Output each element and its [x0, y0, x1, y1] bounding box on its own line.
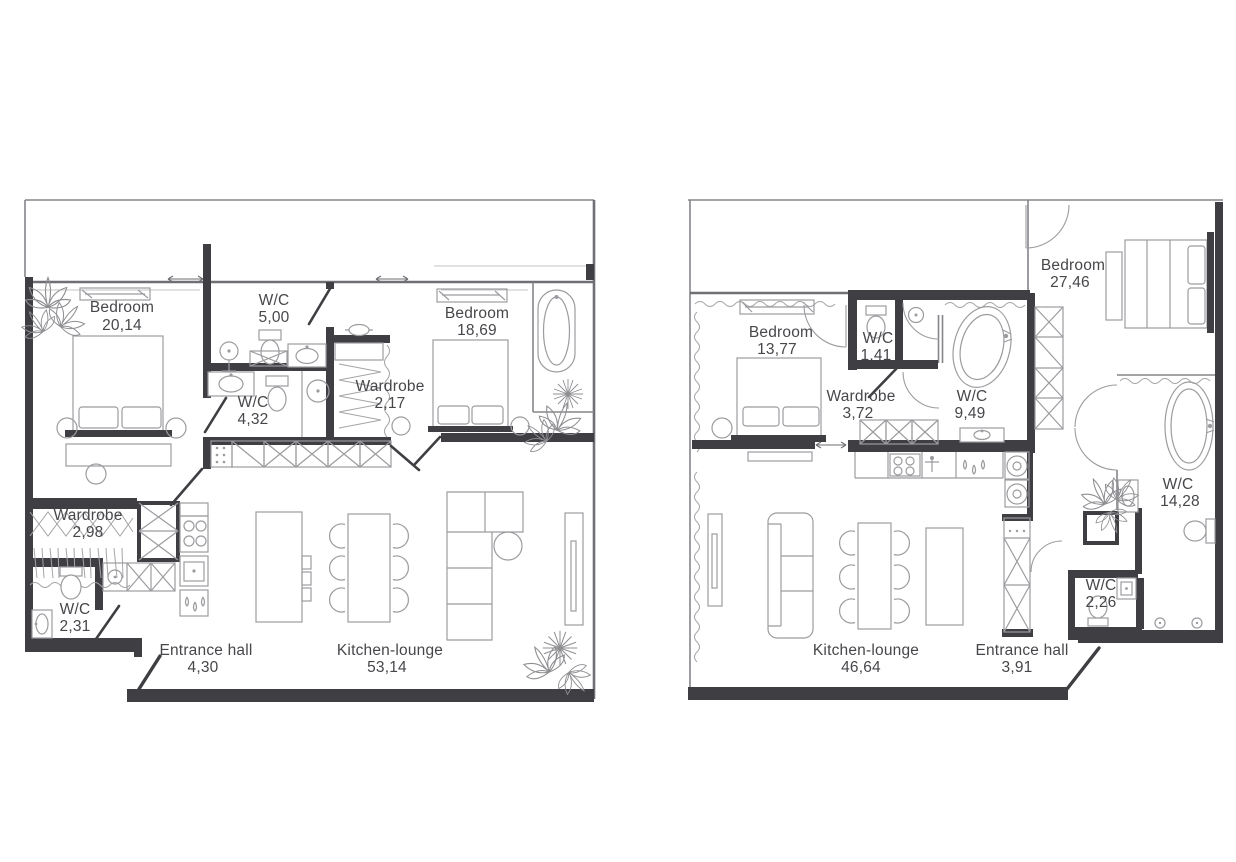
floorplan-right: Bedroom 13,77 W/C 1,41 Wardrobe 3,72 W/C… — [688, 200, 1223, 700]
room-label-wc-141: W/C 1,41 — [861, 330, 894, 364]
kitchen-island — [256, 512, 311, 622]
bathtub-icon — [538, 290, 575, 372]
room-area: 2,98 — [73, 524, 104, 541]
room-area: 3,72 — [843, 405, 874, 422]
sofa-icon-2 — [768, 513, 813, 638]
room-area: 1,41 — [861, 347, 892, 364]
floorplan-left: Bedroom 20,14 W/C 5,00 W/C 4,32 Wardrobe… — [15, 200, 598, 702]
room-name: Wardrobe — [826, 388, 895, 405]
room-name: W/C — [259, 292, 290, 309]
room-area: 18,69 — [457, 322, 497, 339]
room-label-wc-231: W/C 2,31 — [60, 601, 91, 635]
room-area: 27,46 — [1050, 274, 1090, 291]
balcony-line — [25, 200, 594, 277]
lobby-sink — [909, 308, 924, 323]
room-label-bedroom-1869: Bedroom 18,69 — [445, 305, 509, 339]
hall-closet — [1004, 518, 1030, 632]
room-area: 2,26 — [1086, 594, 1117, 611]
bed-icon-4 — [1106, 232, 1214, 333]
room-area: 3,91 — [1002, 659, 1033, 676]
kitchen-island-2 — [926, 528, 963, 625]
room-area: 4,30 — [188, 659, 219, 676]
tv-console — [565, 513, 583, 625]
tv-console-2 — [708, 514, 722, 606]
dining-table — [330, 514, 409, 622]
room-area: 2,31 — [60, 618, 91, 635]
room-area: 53,14 — [367, 659, 407, 676]
room-name: W/C — [863, 330, 894, 347]
room-area: 13,77 — [757, 341, 797, 358]
room-name: W/C — [1086, 577, 1117, 594]
room-area: 46,64 — [841, 659, 881, 676]
room-name: W/C — [957, 388, 988, 405]
cabinet-column — [1035, 307, 1063, 429]
wc4-fixtures — [208, 371, 329, 437]
room-area: 14,28 — [1160, 493, 1200, 510]
dining-table-2 — [840, 523, 910, 629]
room-label-wc-500: W/C 5,00 — [259, 292, 290, 326]
room-name: W/C — [60, 601, 91, 618]
room-name: Wardrobe — [53, 507, 122, 524]
room-area: 2,17 — [375, 395, 406, 412]
room-name: Wardrobe — [355, 378, 424, 395]
floorplan-sheet: Bedroom 20,14 W/C 5,00 W/C 4,32 Wardrobe… — [0, 0, 1236, 862]
stove-column — [180, 503, 208, 616]
room-name: W/C — [1163, 476, 1194, 493]
room-area: 20,14 — [102, 317, 142, 334]
room-label-bedroom-2014: Bedroom 20,14 — [90, 299, 154, 334]
room-label-bedroom-2746: Bedroom 27,46 — [1041, 257, 1105, 291]
room-label-wc-432: W/C 4,32 — [238, 394, 269, 428]
room-label-wardrobe-372: Wardrobe 3,72 — [826, 388, 895, 422]
room-label-kitchen-4664: Kitchen-lounge 46,64 — [813, 642, 919, 676]
room-label-wardrobe-298: Wardrobe 2,98 — [53, 507, 122, 541]
room-name: Bedroom — [90, 299, 154, 316]
door-arrow — [816, 442, 846, 448]
room-name: Entrance hall — [975, 642, 1068, 659]
plant-icon-2 — [517, 379, 588, 455]
lower-counter — [103, 563, 175, 591]
room-label-wc-226: W/C 2,26 — [1086, 577, 1117, 611]
room-label-bedroom-1377: Bedroom 13,77 — [749, 324, 813, 358]
room-name: Bedroom — [445, 305, 509, 322]
room-name: Bedroom — [1041, 257, 1105, 274]
room-label-wc-949: W/C 9,49 — [955, 388, 988, 422]
sofa-icon — [447, 492, 523, 640]
room-area: 4,32 — [238, 411, 269, 428]
floorplan-canvas: Bedroom 20,14 W/C 5,00 W/C 4,32 Wardrobe… — [0, 0, 1236, 862]
room-name: Bedroom — [749, 324, 813, 341]
glazing-lines — [33, 266, 594, 290]
room-name: Kitchen-lounge — [813, 642, 919, 659]
room-label-entrance-430: Entrance hall 4,30 — [159, 642, 252, 676]
room-name: Entrance hall — [159, 642, 252, 659]
room-area: 9,49 — [955, 405, 986, 422]
room-area: 5,00 — [259, 309, 290, 326]
room-name: Kitchen-lounge — [337, 642, 443, 659]
room-label-kitchen-5314: Kitchen-lounge 53,14 — [337, 642, 443, 676]
room-name: W/C — [238, 394, 269, 411]
room-label-wc-1428: W/C 14,28 — [1160, 476, 1200, 510]
shaft — [1085, 513, 1117, 543]
bed-icon — [57, 336, 186, 484]
room-label-entrance-391: Entrance hall 3,91 — [975, 642, 1068, 676]
kitchen-counter-2 — [855, 452, 1029, 507]
tall-cabinet — [139, 503, 178, 560]
